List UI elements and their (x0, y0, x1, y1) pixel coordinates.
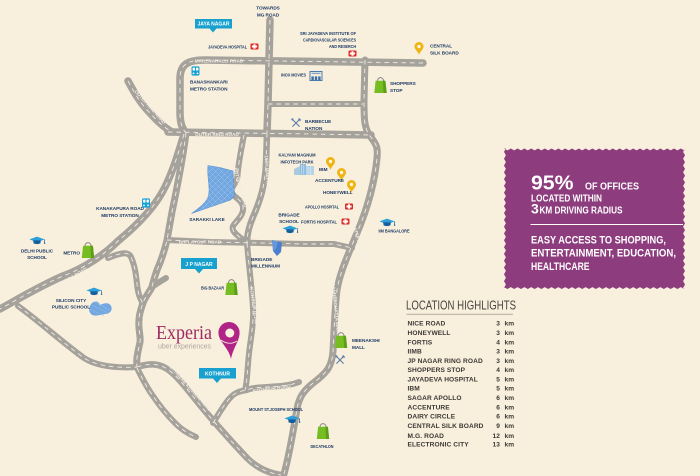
svg-text:6: 6 (496, 395, 500, 402)
svg-text:STOP: STOP (390, 88, 402, 93)
svg-text:ACCENTURE: ACCENTURE (408, 404, 451, 411)
svg-text:METRO: METRO (63, 251, 80, 256)
svg-text:JAYADEVA HOSPITAL: JAYADEVA HOSPITAL (208, 45, 247, 50)
svg-text:km: km (505, 376, 515, 383)
svg-text:JAYADEVA HOSPITAL: JAYADEVA HOSPITAL (408, 376, 478, 383)
svg-text:SRI JAYADEVA INSTITUTE OF: SRI JAYADEVA INSTITUTE OF (300, 31, 356, 36)
svg-text:EASY ACCESS TO SHOPPING,: EASY ACCESS TO SHOPPING, (531, 234, 666, 246)
svg-text:INOX MOVIES: INOX MOVIES (281, 73, 306, 78)
svg-text:km: km (505, 358, 515, 365)
svg-text:BANASHANKARI: BANASHANKARI (190, 80, 228, 85)
svg-text:DELHI PUBLIC: DELHI PUBLIC (21, 249, 54, 254)
svg-text:KALYANI MAGNUM: KALYANI MAGNUM (279, 153, 316, 158)
svg-text:NICE ROAD: NICE ROAD (408, 321, 446, 328)
svg-text:MOUNT ST.JOSEPH SCHOOL: MOUNT ST.JOSEPH SCHOOL (249, 407, 303, 412)
svg-text:JAYA NAGAR: JAYA NAGAR (198, 22, 230, 28)
svg-text:AND RESERCH: AND RESERCH (329, 44, 357, 49)
svg-text:3: 3 (496, 358, 500, 365)
svg-text:INFOTECH PARK: INFOTECH PARK (281, 160, 315, 165)
svg-text:M.G. ROAD: M.G. ROAD (408, 433, 445, 440)
svg-text:km: km (505, 321, 515, 328)
svg-text:3: 3 (496, 330, 500, 337)
svg-text:J P NAGAR: J P NAGAR (185, 262, 213, 268)
svg-text:5: 5 (496, 386, 500, 393)
svg-text:km: km (505, 442, 515, 449)
svg-text:METRO STATION: METRO STATION (190, 87, 228, 92)
svg-text:km: km (505, 386, 515, 393)
svg-text:BRIGADE: BRIGADE (251, 257, 272, 262)
svg-text:MILLENNIUM: MILLENNIUM (251, 264, 280, 269)
svg-text:SHOPPERS: SHOPPERS (390, 81, 416, 86)
svg-text:SILK BOARD: SILK BOARD (430, 51, 459, 56)
svg-text:4: 4 (496, 339, 500, 346)
svg-text:CARDIOVASCULAR SCIENCES: CARDIOVASCULAR SCIENCES (303, 38, 356, 43)
svg-text:9: 9 (496, 423, 500, 430)
svg-text:APOLLO HOSPITAL: APOLLO HOSPITAL (305, 205, 339, 210)
svg-text:JP NAGAR RING ROAD: JP NAGAR RING ROAD (408, 358, 483, 365)
svg-text:3: 3 (531, 201, 539, 217)
svg-text:6: 6 (496, 414, 500, 421)
svg-text:3: 3 (496, 321, 500, 328)
svg-text:HONEYWELL: HONEYWELL (408, 330, 451, 337)
svg-text:LOCATION HIGHLIGHTS: LOCATION HIGHLIGHTS (406, 299, 516, 313)
svg-text:IBM: IBM (319, 167, 328, 172)
svg-text:MALL: MALL (352, 345, 365, 350)
svg-text:KANAKAPURA ROAD: KANAKAPURA ROAD (96, 206, 144, 211)
svg-text:5: 5 (496, 376, 500, 383)
svg-text:TOWARDS: TOWARDS (256, 6, 280, 11)
svg-text:95%: 95% (531, 173, 574, 195)
svg-text:km: km (505, 349, 515, 356)
svg-text:BIG BAZAAR: BIG BAZAAR (201, 286, 225, 291)
svg-text:NATION: NATION (305, 126, 323, 131)
svg-text:SILICON CITY: SILICON CITY (56, 298, 87, 303)
svg-text:SHOPPERS STOP: SHOPPERS STOP (408, 367, 466, 374)
svg-text:ENTERTAINMENT, EDUCATION,: ENTERTAINMENT, EDUCATION, (531, 248, 676, 260)
svg-text:KOTHNUR: KOTHNUR (205, 372, 230, 378)
svg-text:FORTIS HOSPITAL: FORTIS HOSPITAL (301, 220, 337, 225)
svg-text:km: km (505, 414, 515, 421)
svg-text:RRI LAYOUT ROAD: RRI LAYOUT ROAD (179, 240, 222, 245)
svg-text:km: km (505, 433, 515, 440)
svg-text:HONEYWELL: HONEYWELL (323, 190, 353, 195)
svg-text:IIMB: IIMB (408, 349, 422, 356)
svg-text:FORTIS: FORTIS (408, 339, 433, 346)
svg-text:km: km (505, 367, 515, 374)
svg-text:CENTRAL: CENTRAL (430, 44, 452, 49)
svg-text:PUBLIC SCHOOL: PUBLIC SCHOOL (52, 305, 90, 310)
svg-text:KM DRIVING RADIUS: KM DRIVING RADIUS (540, 206, 623, 217)
svg-text:km: km (505, 339, 515, 346)
svg-text:km: km (505, 404, 515, 411)
svg-text:12: 12 (492, 433, 500, 440)
svg-text:OUTER RING ROAD: OUTER RING ROAD (195, 132, 239, 137)
svg-text:uber experiences: uber experiences (158, 342, 211, 351)
svg-text:6: 6 (496, 404, 500, 411)
svg-text:SCHOOL: SCHOOL (279, 219, 299, 224)
svg-text:IBM: IBM (408, 386, 421, 393)
svg-text:SCHOOL: SCHOOL (27, 255, 47, 260)
svg-text:CENTRAL SILK BOARD: CENTRAL SILK BOARD (408, 423, 484, 430)
svg-text:MG ROAD: MG ROAD (257, 13, 280, 18)
svg-text:IIM BANGALORE: IIM BANGALORE (379, 229, 410, 234)
svg-text:4: 4 (496, 367, 500, 374)
svg-text:HEALTHCARE: HEALTHCARE (531, 261, 590, 273)
svg-text:km: km (505, 423, 515, 430)
svg-text:DAIRY CIRCLE: DAIRY CIRCLE (408, 414, 456, 421)
svg-text:13: 13 (492, 442, 500, 449)
svg-text:SAGAR APOLLO: SAGAR APOLLO (408, 395, 462, 402)
svg-text:DECATHLON: DECATHLON (311, 444, 335, 449)
svg-text:LOCATED WITHIN: LOCATED WITHIN (531, 194, 602, 205)
svg-text:MARENAHALLI ROAD: MARENAHALLI ROAD (195, 59, 244, 64)
svg-text:OF OFFICES: OF OFFICES (585, 182, 639, 193)
svg-text:METRO STATION: METRO STATION (101, 213, 139, 218)
svg-text:ELECTRONIC CITY: ELECTRONIC CITY (408, 442, 470, 449)
svg-text:BARBECUE: BARBECUE (305, 119, 331, 124)
svg-text:3: 3 (496, 349, 500, 356)
svg-text:SARAKKI LAKE: SARAKKI LAKE (189, 217, 224, 222)
svg-text:km: km (505, 395, 515, 402)
svg-text:MEENAKSHI: MEENAKSHI (352, 338, 380, 343)
svg-text:BRIGADE: BRIGADE (278, 213, 299, 218)
svg-text:ACCENTURE: ACCENTURE (315, 178, 344, 183)
svg-text:km: km (505, 330, 515, 337)
